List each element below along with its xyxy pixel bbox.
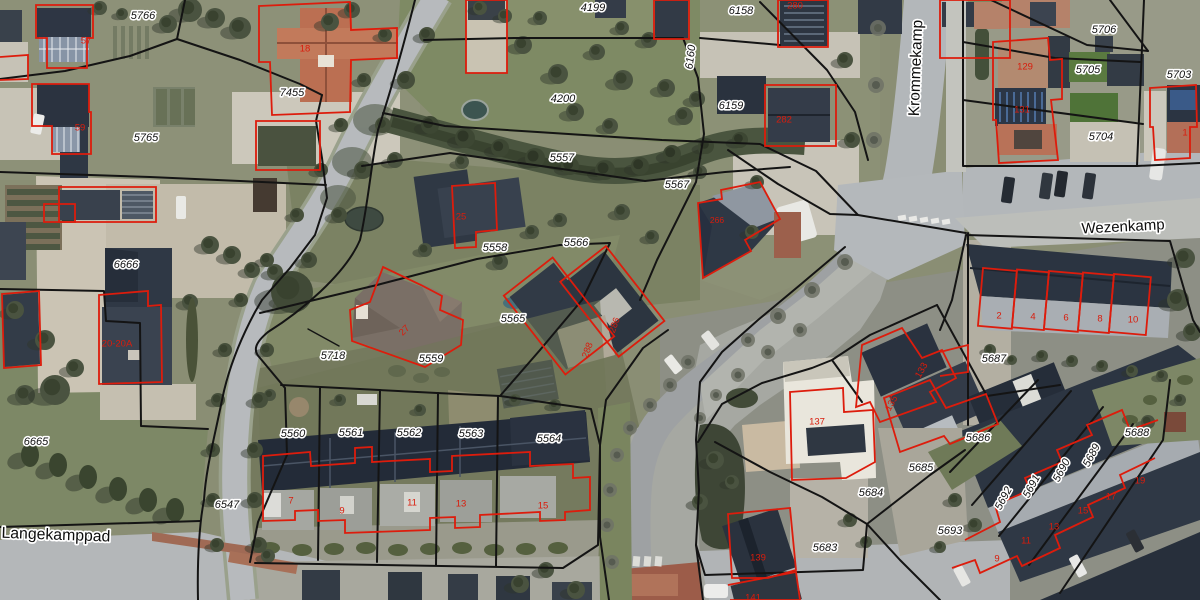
svg-text:9: 9	[994, 553, 999, 564]
svg-text:139: 139	[750, 552, 766, 563]
svg-text:5559: 5559	[419, 353, 443, 365]
svg-text:5765: 5765	[134, 132, 159, 144]
svg-text:9: 9	[339, 505, 344, 516]
svg-text:129: 129	[1017, 61, 1033, 72]
svg-text:5560: 5560	[281, 428, 306, 440]
svg-text:5566: 5566	[564, 237, 589, 249]
svg-text:5565: 5565	[501, 313, 526, 325]
svg-text:20-20A: 20-20A	[102, 338, 133, 349]
svg-text:11: 11	[407, 497, 417, 508]
svg-text:5693: 5693	[938, 525, 963, 537]
svg-text:5686: 5686	[966, 432, 991, 444]
svg-text:13: 13	[1049, 521, 1060, 532]
svg-text:5687: 5687	[982, 353, 1007, 365]
svg-text:19: 19	[1135, 475, 1146, 486]
svg-text:6665: 6665	[24, 436, 49, 448]
svg-text:59: 59	[75, 122, 86, 133]
svg-text:4: 4	[1030, 311, 1035, 322]
svg-text:137: 137	[809, 416, 825, 427]
svg-text:5718: 5718	[321, 350, 346, 362]
svg-text:5557: 5557	[550, 152, 575, 164]
svg-text:6666: 6666	[114, 259, 139, 271]
svg-text:17: 17	[1106, 491, 1117, 502]
svg-text:1: 1	[1182, 127, 1187, 138]
svg-text:5706: 5706	[1092, 24, 1117, 36]
svg-text:5561: 5561	[339, 427, 363, 439]
svg-text:15: 15	[538, 500, 549, 511]
svg-text:5563: 5563	[459, 428, 484, 440]
svg-text:57: 57	[81, 35, 92, 46]
svg-text:6158: 6158	[729, 5, 754, 17]
svg-text:11: 11	[1021, 535, 1031, 546]
svg-text:6159: 6159	[719, 100, 743, 112]
svg-text:5562: 5562	[397, 427, 421, 439]
svg-text:5684: 5684	[859, 487, 883, 499]
svg-text:5703: 5703	[1167, 69, 1192, 81]
svg-text:5564: 5564	[537, 433, 561, 445]
svg-text:4200: 4200	[551, 93, 576, 105]
svg-text:8: 8	[1097, 313, 1102, 324]
svg-text:5766: 5766	[131, 10, 156, 22]
svg-text:7: 7	[288, 495, 293, 506]
svg-text:282: 282	[776, 114, 792, 125]
svg-text:25: 25	[456, 211, 467, 222]
svg-text:131: 131	[1014, 104, 1030, 115]
svg-text:6547: 6547	[215, 499, 240, 511]
svg-text:5705: 5705	[1076, 64, 1101, 76]
svg-text:266: 266	[710, 215, 724, 225]
svg-text:Krommekamp: Krommekamp	[906, 20, 926, 117]
svg-text:280: 280	[787, 0, 803, 11]
svg-text:5688: 5688	[1125, 427, 1150, 439]
svg-text:15: 15	[1078, 505, 1089, 516]
svg-text:141: 141	[745, 592, 761, 600]
svg-text:2: 2	[996, 310, 1001, 321]
svg-text:5704: 5704	[1089, 131, 1113, 143]
svg-text:10: 10	[1128, 314, 1139, 325]
svg-text:18: 18	[300, 43, 311, 54]
svg-text:4199: 4199	[581, 2, 605, 14]
svg-text:13: 13	[456, 498, 467, 509]
svg-text:5685: 5685	[909, 462, 934, 474]
svg-text:5567: 5567	[665, 179, 690, 191]
svg-text:6: 6	[1063, 312, 1068, 323]
svg-text:7455: 7455	[280, 87, 305, 99]
svg-text:5683: 5683	[813, 542, 838, 554]
svg-text:5558: 5558	[483, 242, 508, 254]
